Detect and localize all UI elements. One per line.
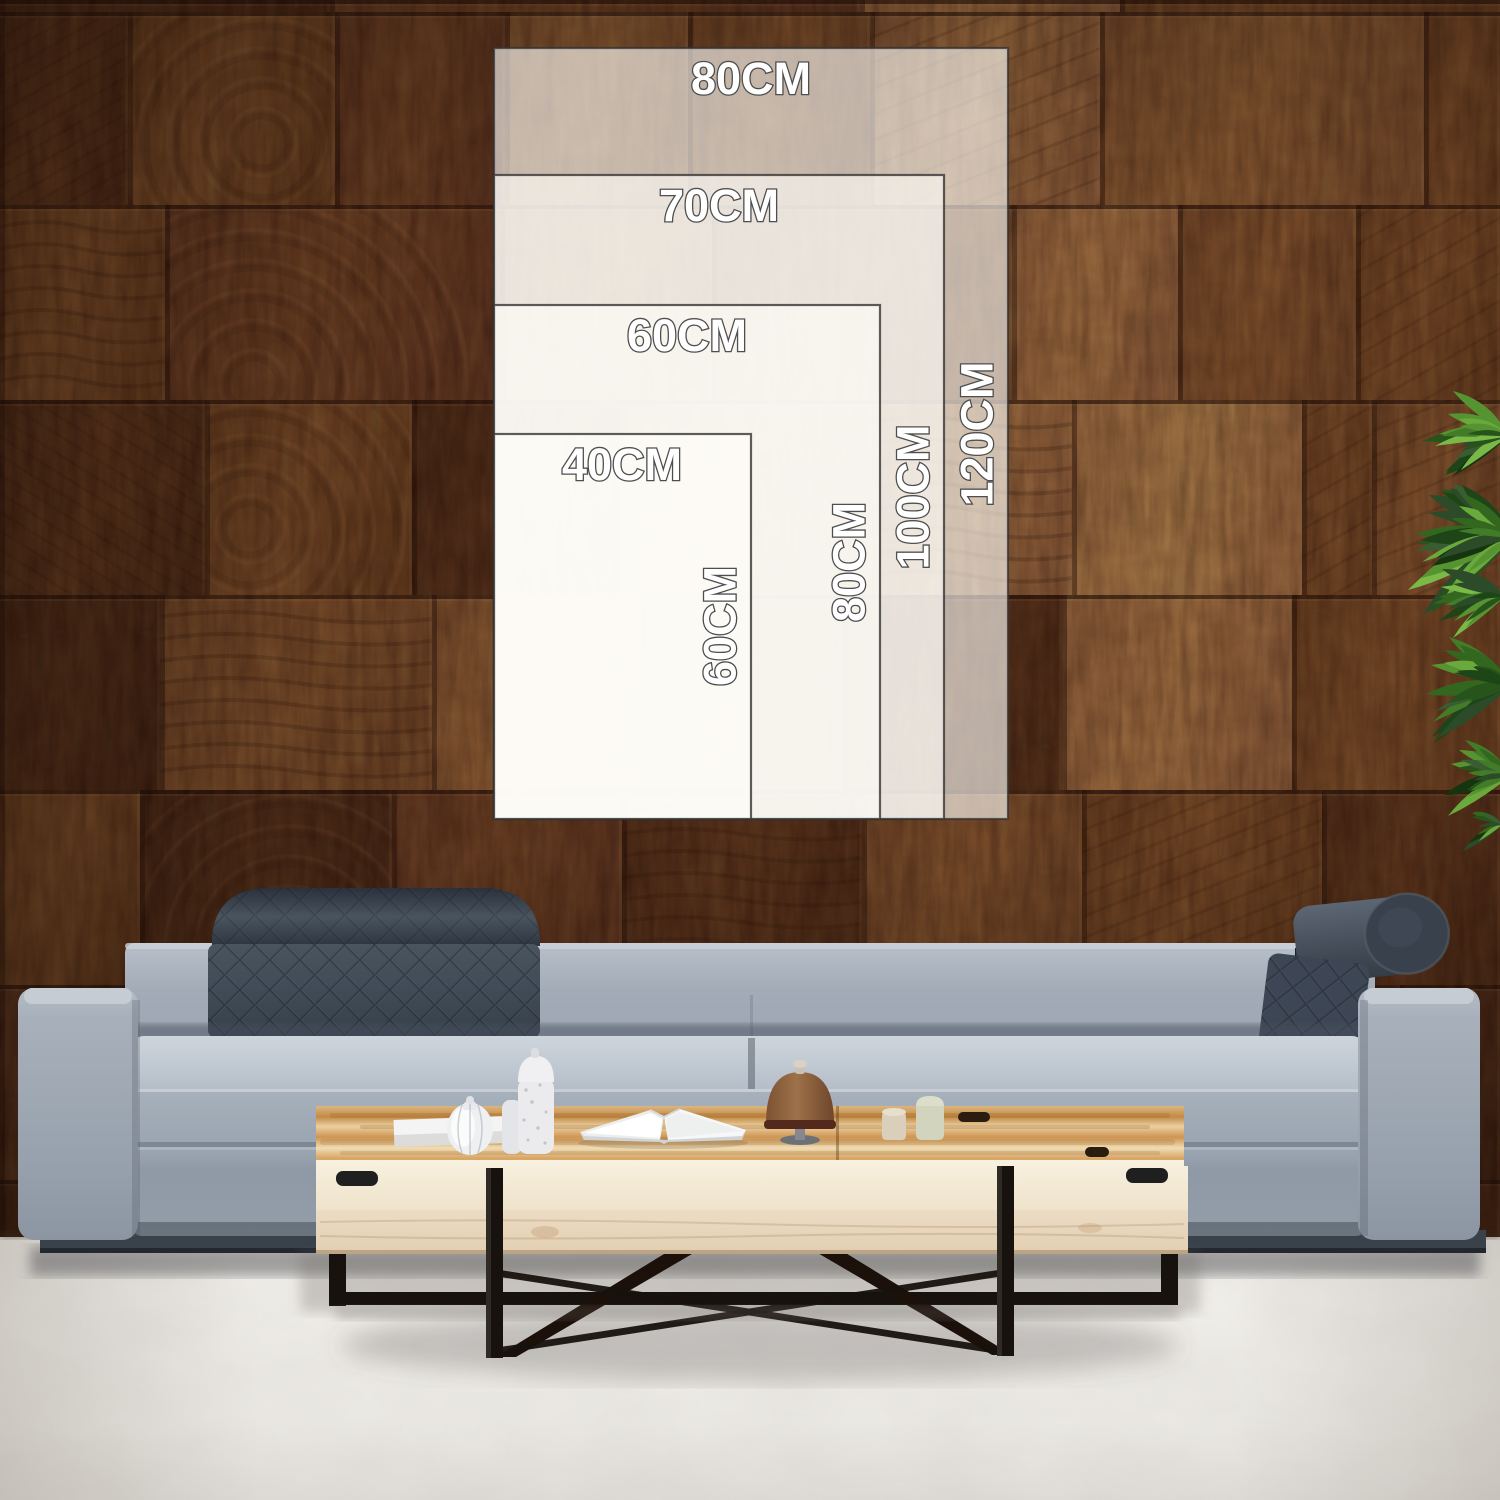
- svg-text:40CM: 40CM: [562, 439, 682, 490]
- svg-text:80CM: 80CM: [824, 502, 875, 622]
- svg-text:100CM: 100CM: [888, 424, 939, 569]
- svg-text:60CM: 60CM: [695, 566, 746, 686]
- svg-text:120CM: 120CM: [952, 361, 1003, 506]
- svg-text:70CM: 70CM: [659, 180, 779, 231]
- svg-text:60CM: 60CM: [627, 310, 747, 361]
- svg-text:80CM: 80CM: [691, 53, 811, 104]
